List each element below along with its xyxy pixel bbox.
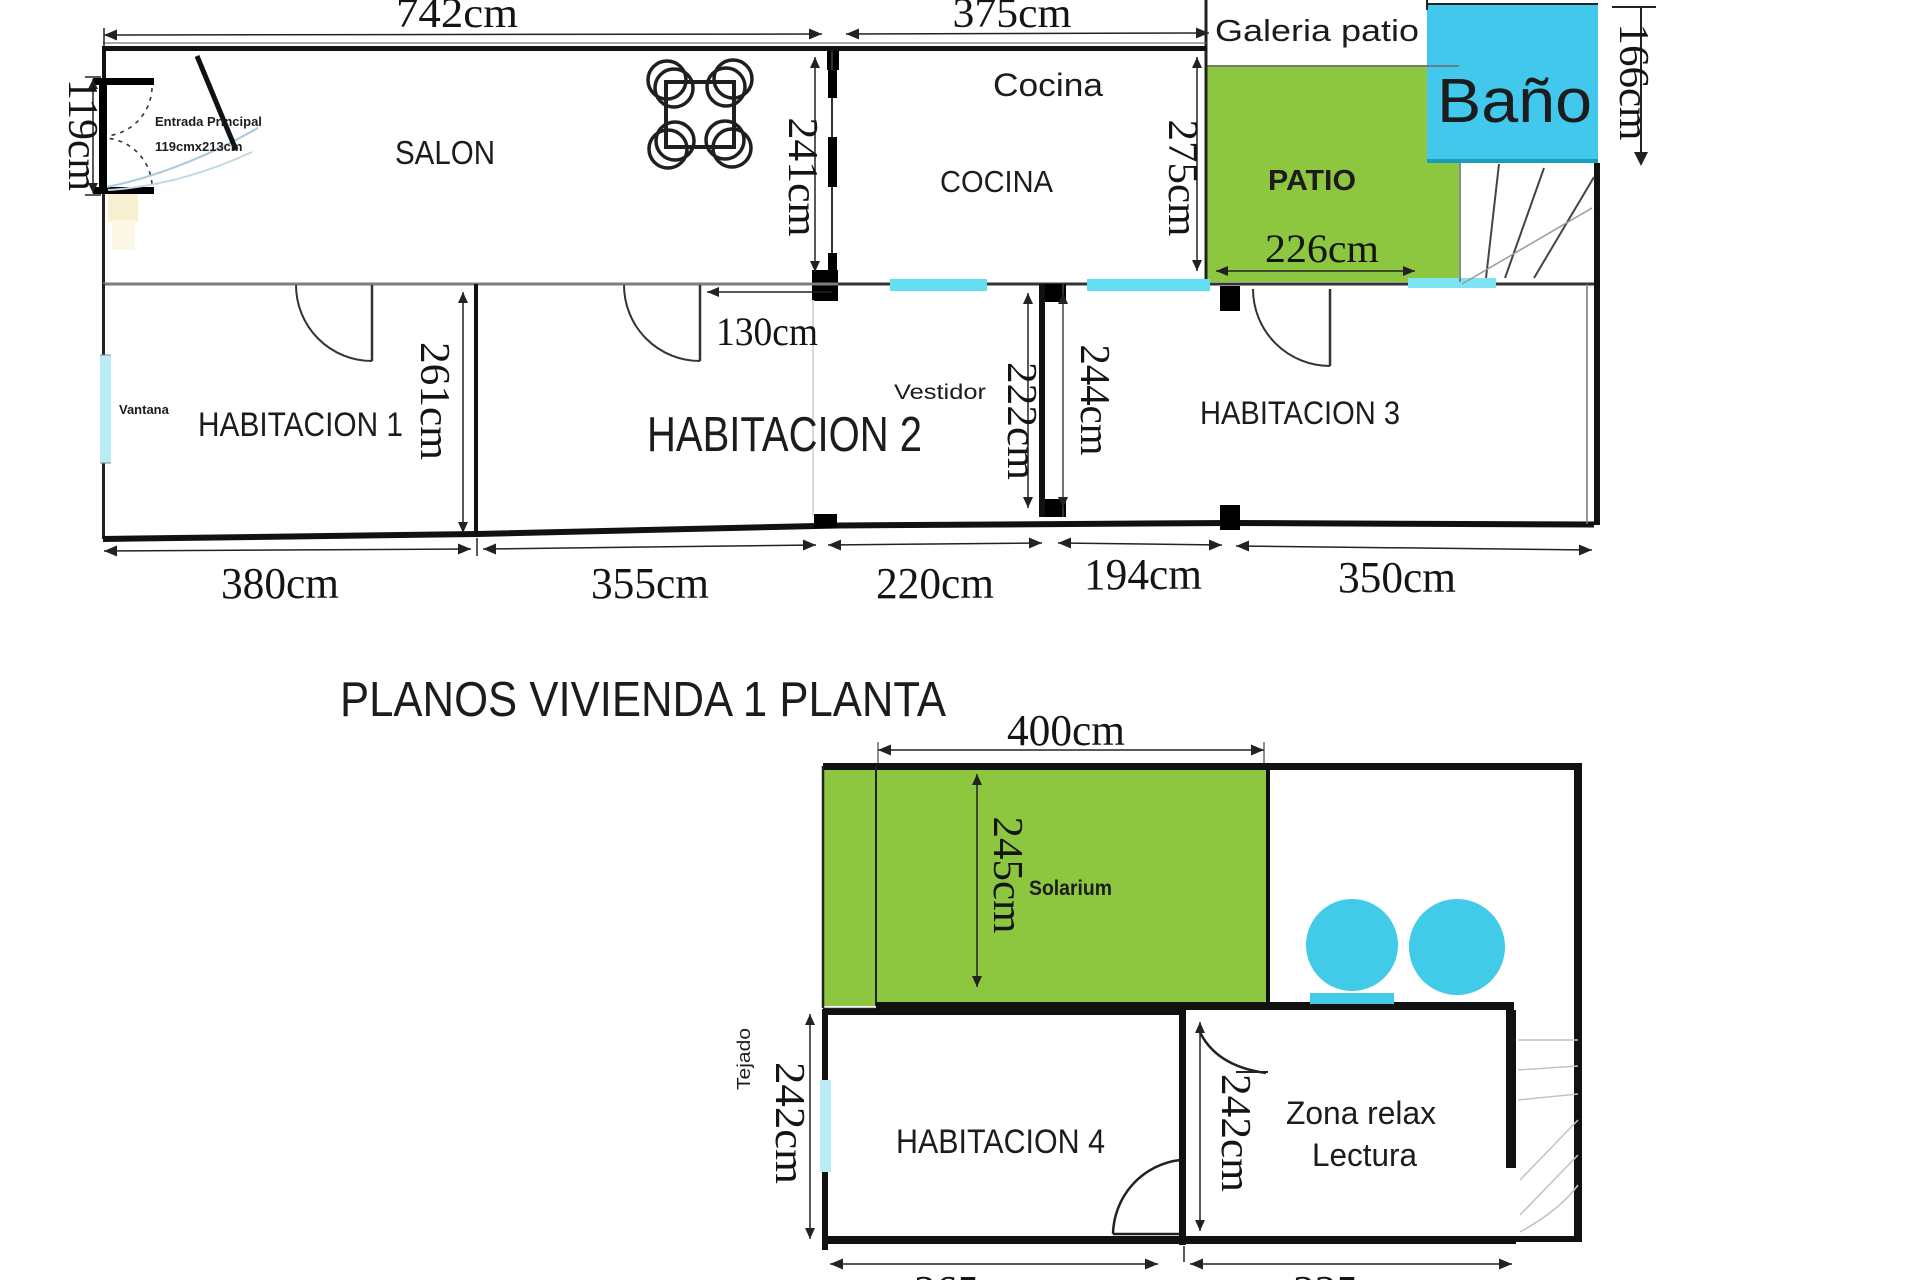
svg-text:Zona relax: Zona relax (1286, 1095, 1436, 1131)
svg-text:119cm: 119cm (59, 79, 105, 191)
svg-text:400cm: 400cm (1007, 706, 1125, 755)
svg-text:COCINA: COCINA (940, 164, 1053, 199)
svg-text:220cm: 220cm (876, 559, 994, 608)
svg-text:130cm: 130cm (716, 309, 818, 354)
svg-text:HABITACION 4: HABITACION 4 (896, 1123, 1105, 1161)
svg-text:226cm: 226cm (1265, 226, 1379, 271)
svg-text:241cm: 241cm (779, 118, 825, 237)
svg-text:742cm: 742cm (396, 0, 518, 37)
svg-text:365cm: 365cm (914, 1267, 1032, 1280)
svg-text:HABITACION 2: HABITACION 2 (647, 408, 922, 462)
svg-text:PATIO: PATIO (1268, 165, 1356, 197)
svg-text:335cm: 335cm (1293, 1267, 1411, 1280)
svg-text:Galeria patio: Galeria patio (1215, 13, 1419, 48)
svg-text:375cm: 375cm (953, 0, 1072, 37)
svg-text:242cm: 242cm (1212, 1074, 1258, 1192)
svg-text:Solarium: Solarium (1029, 877, 1112, 900)
svg-text:166cm: 166cm (1610, 24, 1656, 141)
svg-text:PLANOS VIVIENDA 1 PLANTA: PLANOS VIVIENDA 1 PLANTA (340, 673, 946, 727)
svg-text:Vestidor: Vestidor (894, 381, 986, 404)
svg-text:275cm: 275cm (1159, 120, 1205, 237)
svg-text:355cm: 355cm (591, 559, 709, 608)
svg-text:Vantana: Vantana (119, 402, 170, 417)
svg-text:380cm: 380cm (221, 559, 339, 608)
svg-text:261cm: 261cm (411, 342, 457, 460)
svg-text:242cm: 242cm (766, 1062, 812, 1184)
svg-text:350cm: 350cm (1338, 553, 1456, 602)
svg-text:244cm: 244cm (1071, 345, 1117, 456)
svg-text:HABITACION 1: HABITACION 1 (198, 406, 403, 444)
svg-text:119cmx213cm: 119cmx213cm (155, 139, 242, 154)
svg-text:HABITACION 3: HABITACION 3 (1200, 395, 1400, 431)
svg-text:SALON: SALON (395, 134, 495, 171)
svg-text:Tejado: Tejado (734, 1028, 754, 1090)
svg-text:194cm: 194cm (1084, 550, 1202, 599)
svg-text:Lectura: Lectura (1312, 1137, 1417, 1173)
svg-text:Baño: Baño (1437, 67, 1592, 136)
svg-text:245cm: 245cm (984, 817, 1030, 934)
svg-text:222cm: 222cm (998, 362, 1044, 480)
svg-text:Cocina: Cocina (993, 67, 1103, 103)
svg-text:Entrada Principal: Entrada Principal (155, 114, 262, 129)
